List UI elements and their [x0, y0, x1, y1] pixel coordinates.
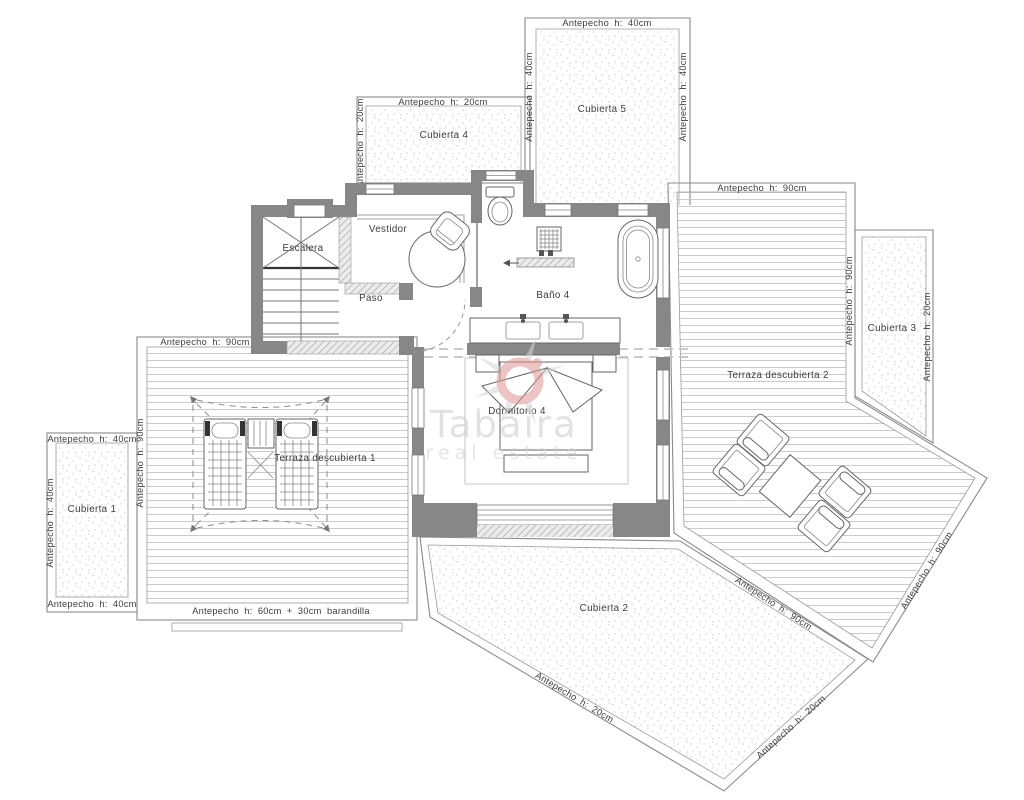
label-antepecho-c4-top: Antepecho h: 20cm — [398, 97, 487, 107]
cubierta-5: Antepecho h: 40cm Antepecho h: 40cm Ante… — [524, 18, 690, 205]
nightstand-right — [593, 355, 616, 372]
vestidor-room — [357, 209, 473, 287]
label-antepecho-c5-right: Antepecho h: 40cm — [678, 52, 688, 141]
watermark-tagline: real estate — [426, 442, 583, 464]
label-antepecho-t1-bottom: Antepecho h: 60cm + 30cm barandilla — [192, 606, 370, 616]
toilet — [486, 187, 514, 225]
label-antepecho-c1-bottom: Antepecho h: 40cm — [47, 599, 136, 609]
label-cubierta-3: Cubierta 3 — [868, 323, 917, 334]
barandilla-rail — [172, 623, 402, 631]
sun-lounger-2 — [276, 419, 318, 509]
label-antepecho-t2-top: Antepecho h: 90cm — [717, 183, 806, 193]
label-cubierta-2: Cubierta 2 — [580, 603, 629, 614]
cubierta-1: Antepecho h: 40cm Antepecho h: 40cm Ante… — [45, 433, 137, 612]
label-cubierta-1: Cubierta 1 — [68, 504, 117, 515]
watermark-name: Tabaira — [429, 403, 577, 446]
label-antepecho-c5-left: Antepecho h: 40cm — [524, 52, 534, 141]
label-terraza-2: Terraza descubierta 2 — [727, 370, 829, 381]
label-antepecho-c1-left: Antepecho h: 40cm — [45, 478, 55, 567]
label-antepecho-c1-top: Antepecho h: 40cm — [47, 434, 136, 444]
cubierta-3: Antepecho h: 20cm Cubierta 3 — [855, 230, 933, 443]
floor-plan-svg: Antepecho h: 20cm Antepecho h: 20cm Cubi… — [0, 0, 1024, 800]
label-cubierta-5: Cubierta 5 — [578, 104, 627, 115]
label-antepecho-c3-right: Antepecho h: 20cm — [922, 292, 932, 381]
label-vestidor: Vestidor — [369, 224, 408, 235]
shower — [503, 227, 574, 267]
lounger-side-table — [248, 419, 274, 448]
vanity — [470, 314, 620, 343]
label-paso: Paso — [359, 293, 383, 304]
sun-lounger-1 — [204, 419, 246, 509]
terraza-descubierta-1: Antepecho h: 90cm Antepecho h: 90cm Ante… — [135, 337, 417, 631]
label-antepecho-c5-top: Antepecho h: 40cm — [562, 18, 651, 28]
label-escalera: Escalera — [283, 243, 324, 254]
door-swing-arc — [413, 300, 465, 352]
floor-plan-canvas: Antepecho h: 20cm Antepecho h: 20cm Cubi… — [0, 0, 1024, 800]
bathtub — [618, 220, 658, 298]
label-bano-4: Baño 4 — [536, 290, 569, 301]
label-antepecho-t2-right: Antepecho h: 90cm — [844, 256, 854, 345]
stair-niche — [294, 205, 325, 217]
shower-bench — [517, 258, 574, 267]
staircase — [263, 217, 339, 341]
label-terraza-1: Terraza descubierta 1 — [274, 453, 376, 464]
label-cubierta-4: Cubierta 4 — [420, 130, 469, 141]
label-antepecho-t1-left: Antepecho h: 90cm — [135, 418, 145, 507]
label-antepecho-t1-top: Antepecho h: 90cm — [160, 337, 249, 347]
label-antepecho-c4-left: Antepecho h: 20cm — [355, 98, 365, 187]
